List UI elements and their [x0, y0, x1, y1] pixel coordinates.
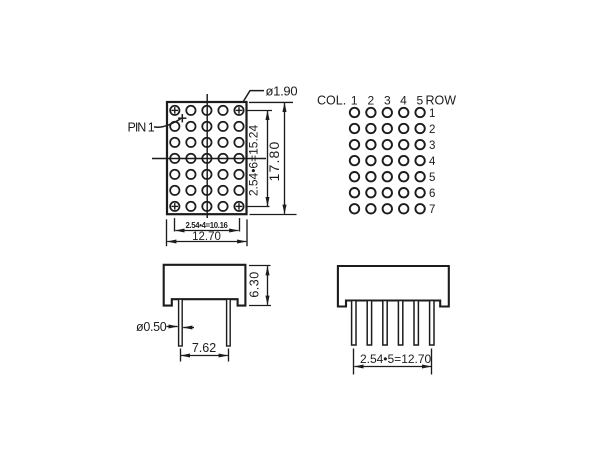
- svg-text:5: 5: [417, 94, 424, 108]
- svg-text:2.54•6=15.24: 2.54•6=15.24: [247, 125, 261, 197]
- svg-text:2.54•4=10.16: 2.54•4=10.16: [185, 221, 228, 230]
- svg-text:2.54•5=12.70: 2.54•5=12.70: [360, 352, 432, 366]
- svg-text:2: 2: [368, 94, 375, 108]
- svg-text:3: 3: [384, 94, 391, 108]
- svg-text:7.62: 7.62: [192, 341, 216, 355]
- svg-text:6: 6: [429, 188, 435, 200]
- svg-text:ø1.90: ø1.90: [266, 84, 298, 99]
- svg-text:4: 4: [429, 156, 436, 168]
- svg-text:PIN 1: PIN 1: [128, 120, 155, 134]
- svg-text:2: 2: [429, 124, 435, 136]
- svg-text:1: 1: [429, 108, 435, 120]
- svg-text:ø0.50: ø0.50: [136, 320, 167, 334]
- svg-text:3: 3: [429, 140, 435, 152]
- svg-text:COL.: COL.: [317, 94, 346, 108]
- svg-text:12.70: 12.70: [192, 231, 221, 243]
- svg-text:1: 1: [351, 94, 358, 108]
- svg-text:6.30: 6.30: [248, 271, 262, 297]
- svg-text:5: 5: [429, 172, 435, 184]
- svg-text:4: 4: [400, 94, 407, 108]
- svg-text:ROW: ROW: [426, 94, 457, 108]
- svg-text:17.80: 17.80: [266, 140, 282, 181]
- svg-text:7: 7: [429, 204, 435, 216]
